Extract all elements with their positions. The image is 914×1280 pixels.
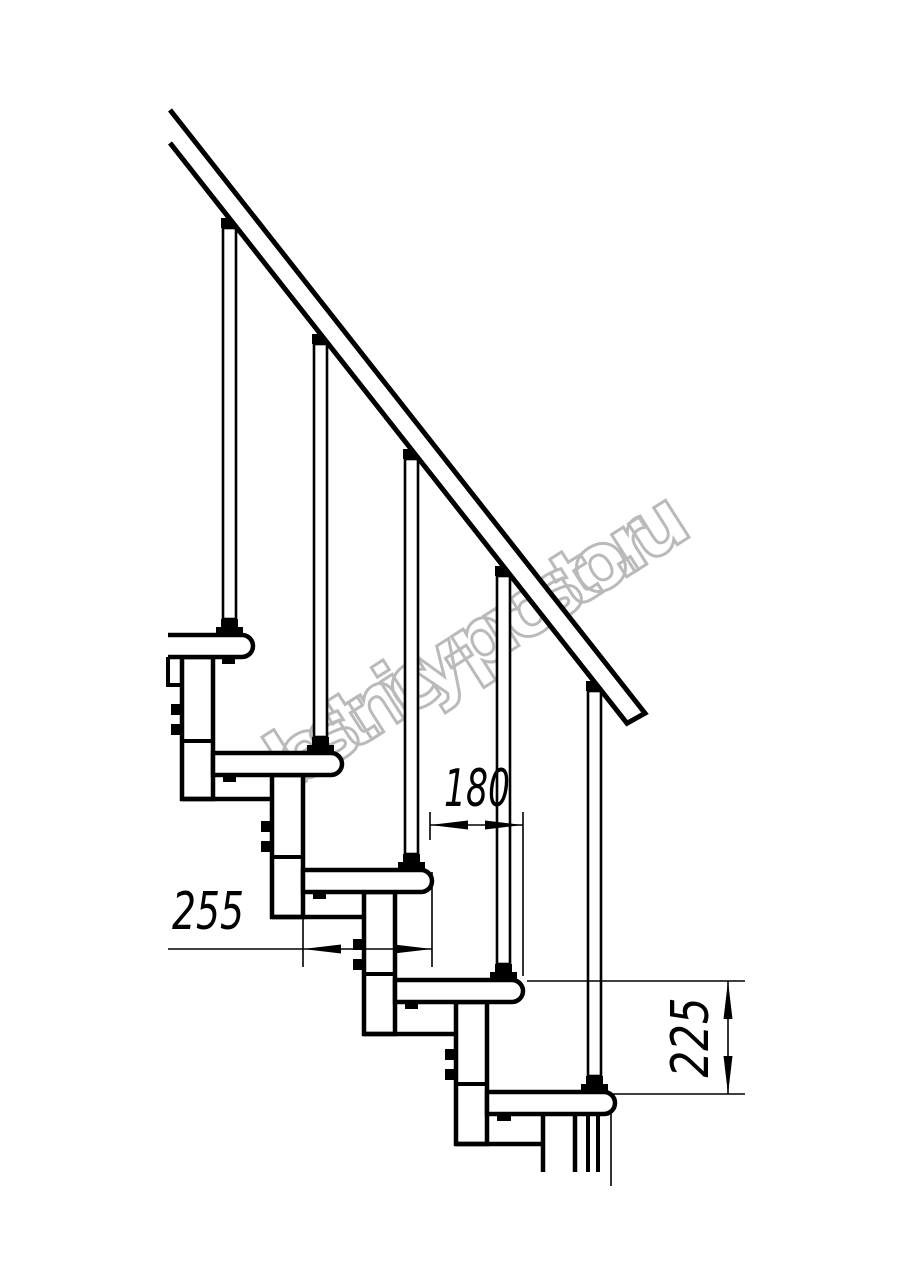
dimension-depth-label: 255 — [172, 882, 244, 942]
baluster-3-base — [398, 862, 425, 870]
drawing-svg: lestnicy-prosto.ru — [0, 0, 914, 1280]
module-1-box — [182, 657, 213, 799]
tread-clamp-icon — [497, 1113, 511, 1121]
baluster-1-base — [216, 627, 243, 635]
arrow-up-icon — [724, 981, 733, 1019]
support-module-5 — [543, 1114, 611, 1186]
dimension-rise-label: 225 — [661, 998, 721, 1078]
bolt-icon — [261, 841, 273, 852]
module-4-box — [456, 1002, 487, 1144]
tread-clamp-icon — [405, 1001, 418, 1009]
support-module-3 — [353, 892, 456, 1034]
baluster-3-shaft — [405, 459, 418, 854]
baluster-5-shaft — [588, 691, 601, 1076]
arrow-left-icon — [303, 945, 341, 954]
tread-2 — [213, 753, 342, 775]
tread-5 — [487, 1092, 615, 1114]
module-3-box — [364, 892, 395, 1034]
baluster-4-base — [495, 964, 512, 972]
baluster-1-base — [221, 619, 238, 627]
dimension-rise: 225 — [527, 981, 745, 1094]
bolt-icon — [261, 821, 273, 832]
baluster-5 — [581, 681, 608, 1092]
tread-clamp-icon — [313, 891, 326, 899]
baluster-2-base — [312, 737, 329, 745]
balusters — [216, 218, 608, 1092]
baluster-2-base — [307, 745, 334, 753]
baluster-1-shaft — [223, 228, 236, 619]
baluster-1 — [216, 218, 243, 635]
bolt-icon — [445, 1049, 457, 1060]
baluster-5-base — [586, 1076, 603, 1084]
bolt-icon — [445, 1069, 457, 1080]
bolt-icon — [171, 704, 183, 715]
baluster-4-base — [490, 972, 517, 980]
tread-clamp-icon — [223, 774, 236, 782]
module-5-post-cut — [588, 1114, 598, 1172]
baluster-5-base — [581, 1084, 608, 1092]
bolt-icon — [353, 959, 365, 970]
arrow-down-icon — [724, 1056, 733, 1094]
tread-1 — [168, 635, 253, 657]
tread-clamp-icon — [222, 656, 235, 664]
arrow-left-icon — [430, 821, 468, 830]
support-module-4 — [445, 1002, 543, 1144]
bolt-icon — [171, 724, 183, 735]
arrow-right-icon — [394, 945, 432, 954]
stair-technical-drawing: lestnicy-prosto.ru — [0, 0, 914, 1280]
module-2-box — [272, 775, 303, 917]
module-5-box-cut — [543, 1114, 575, 1172]
tread-4 — [395, 980, 523, 1002]
baluster-3-base — [403, 854, 420, 862]
tread-3 — [303, 870, 432, 892]
baluster-2-shaft — [314, 344, 327, 737]
dimension-run-label: 180 — [444, 759, 510, 819]
